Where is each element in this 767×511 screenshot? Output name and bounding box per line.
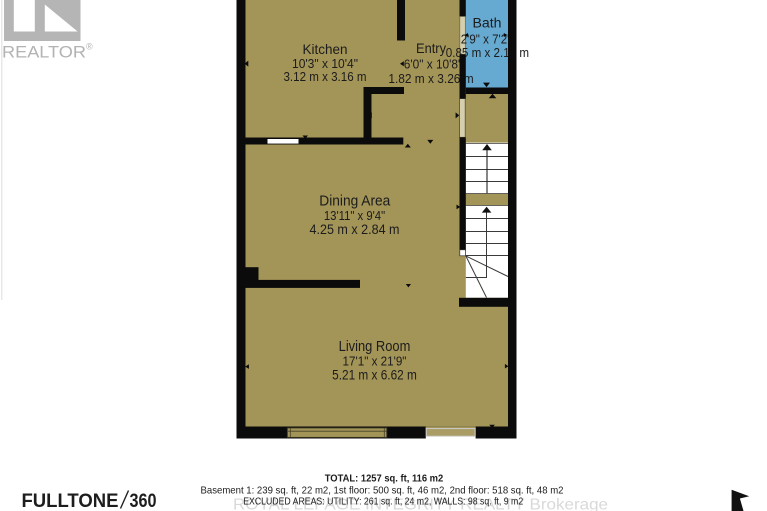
svg-text:Entry: Entry [416, 40, 446, 56]
svg-text:TOTAL: 1257 sq. ft, 116 m2: TOTAL: 1257 sq. ft, 116 m2 [325, 473, 444, 485]
svg-text:REALTOR: REALTOR [2, 44, 86, 62]
svg-text:Bath: Bath [473, 16, 502, 31]
svg-text:0.85 m x 2.18 m: 0.85 m x 2.18 m [446, 45, 529, 60]
svg-text:360: 360 [130, 490, 157, 511]
svg-text:®: ® [86, 42, 93, 52]
svg-text:17'1" x 21'9": 17'1" x 21'9" [343, 353, 407, 368]
svg-text:FULLTONE: FULLTONE [22, 491, 119, 511]
svg-text:4.25 m x 2.84 m: 4.25 m x 2.84 m [310, 222, 400, 237]
svg-text:EXCLUDED AREAS: UTILITY: 261 s: EXCLUDED AREAS: UTILITY: 261 sq. ft, 24 … [243, 496, 523, 508]
svg-text:3.12 m x 3.16 m: 3.12 m x 3.16 m [284, 69, 367, 84]
svg-text:Kitchen: Kitchen [303, 41, 348, 57]
svg-text:5.21 m x 6.62 m: 5.21 m x 6.62 m [332, 368, 417, 383]
svg-text:13'11" x 9'4": 13'11" x 9'4" [324, 208, 386, 223]
